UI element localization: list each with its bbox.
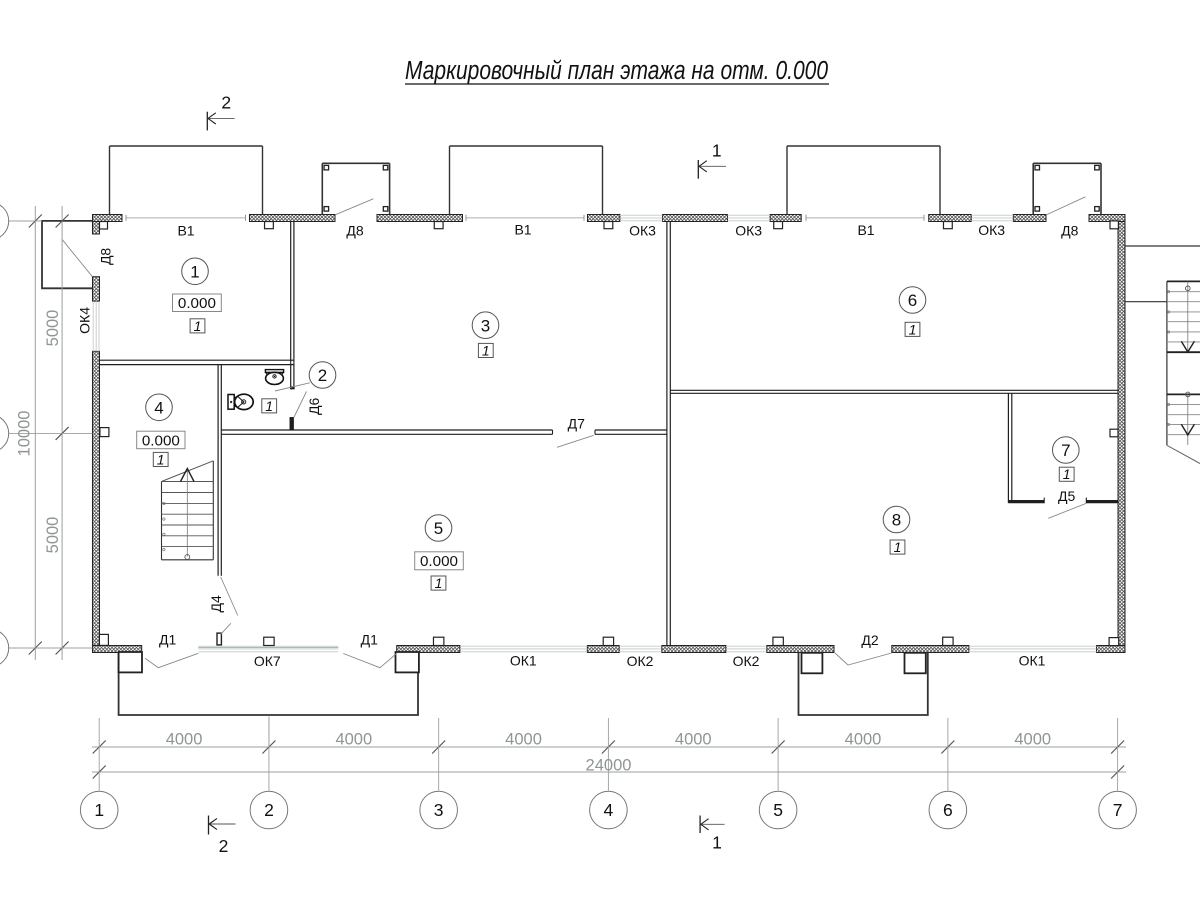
- svg-text:10000: 10000: [16, 411, 34, 457]
- svg-text:Д7: Д7: [568, 416, 585, 432]
- svg-text:Д8: Д8: [346, 223, 363, 239]
- svg-text:ОК2: ОК2: [733, 653, 760, 669]
- svg-text:1: 1: [265, 398, 273, 414]
- svg-text:8: 8: [892, 511, 901, 530]
- svg-text:24000: 24000: [586, 757, 632, 775]
- svg-text:0.000: 0.000: [142, 432, 180, 449]
- svg-text:ОК3: ОК3: [978, 222, 1005, 238]
- svg-text:ОК1: ОК1: [510, 653, 537, 669]
- svg-text:5: 5: [434, 519, 443, 538]
- svg-text:Д8: Д8: [98, 248, 114, 265]
- svg-text:4000: 4000: [1014, 731, 1051, 749]
- svg-text:В1: В1: [514, 222, 531, 238]
- svg-text:6: 6: [943, 800, 953, 820]
- svg-text:1: 1: [1063, 466, 1071, 482]
- svg-text:0.000: 0.000: [178, 295, 216, 312]
- svg-text:2: 2: [219, 836, 229, 856]
- svg-text:4000: 4000: [505, 731, 542, 749]
- svg-text:7: 7: [1061, 441, 1070, 460]
- svg-text:Д2: Д2: [861, 632, 878, 648]
- svg-text:Д8: Д8: [1061, 223, 1078, 239]
- svg-text:5000: 5000: [44, 517, 62, 554]
- svg-text:4000: 4000: [845, 731, 882, 749]
- svg-text:1: 1: [157, 451, 165, 467]
- svg-text:6: 6: [908, 291, 917, 310]
- svg-text:В1: В1: [857, 222, 874, 238]
- svg-text:ОК1: ОК1: [1019, 653, 1046, 669]
- svg-text:1: 1: [94, 800, 104, 820]
- svg-text:5000: 5000: [44, 310, 62, 347]
- svg-text:3: 3: [434, 800, 444, 820]
- svg-text:Д5: Д5: [1058, 488, 1075, 504]
- svg-text:5: 5: [773, 800, 783, 820]
- svg-text:1: 1: [435, 575, 443, 591]
- svg-text:1: 1: [909, 321, 917, 337]
- svg-text:0.000: 0.000: [420, 553, 458, 570]
- svg-text:ОК3: ОК3: [735, 223, 762, 239]
- svg-text:1: 1: [194, 318, 202, 334]
- svg-text:Маркировочный план этажа на от: Маркировочный план этажа на отм. 0.000: [405, 57, 828, 85]
- svg-text:1: 1: [190, 263, 199, 282]
- svg-text:1: 1: [712, 832, 722, 852]
- svg-text:2: 2: [264, 800, 274, 820]
- svg-text:Д1: Д1: [361, 632, 378, 648]
- svg-text:1: 1: [712, 141, 722, 161]
- svg-text:1: 1: [894, 539, 902, 555]
- svg-text:2: 2: [221, 93, 231, 113]
- svg-text:ОК3: ОК3: [629, 223, 656, 239]
- svg-text:4: 4: [604, 800, 614, 820]
- svg-text:Д1: Д1: [159, 632, 176, 648]
- svg-text:В1: В1: [177, 223, 194, 239]
- svg-text:ОК4: ОК4: [76, 307, 92, 334]
- svg-text:3: 3: [481, 316, 490, 335]
- svg-text:ОК2: ОК2: [627, 653, 654, 669]
- svg-text:2: 2: [318, 366, 327, 385]
- svg-text:4000: 4000: [675, 731, 712, 749]
- svg-text:1: 1: [482, 342, 490, 358]
- svg-text:4000: 4000: [166, 731, 203, 749]
- svg-text:Д6: Д6: [306, 397, 322, 414]
- svg-text:ОК7: ОК7: [254, 653, 281, 669]
- svg-text:4: 4: [154, 399, 163, 418]
- svg-text:4000: 4000: [335, 731, 372, 749]
- svg-text:Д4: Д4: [208, 595, 224, 612]
- svg-text:7: 7: [1113, 800, 1123, 820]
